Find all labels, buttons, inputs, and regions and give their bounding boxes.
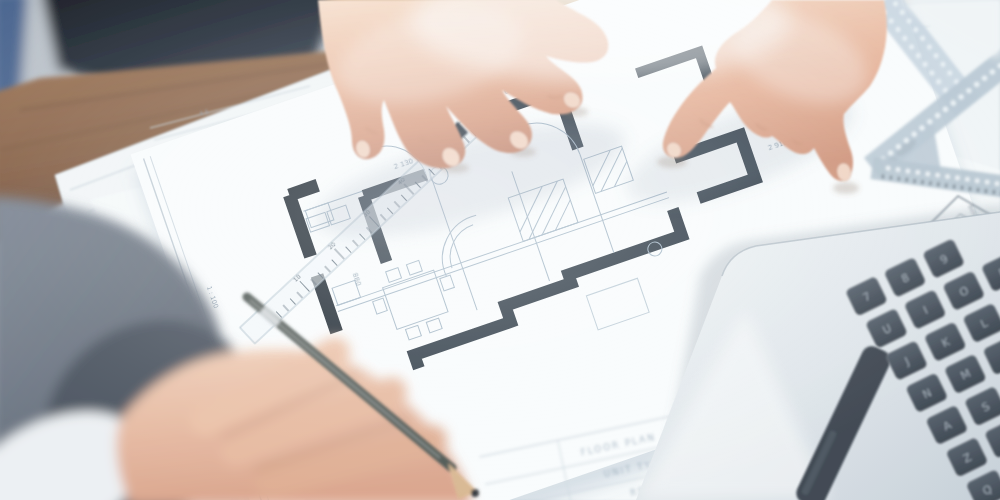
- cool-tint-overlay: [0, 0, 1000, 500]
- photo-canvas: 4 5 1 : 100: [0, 0, 1000, 500]
- photo-architects-over-blueprint: 4 5 1 : 100: [0, 0, 1000, 500]
